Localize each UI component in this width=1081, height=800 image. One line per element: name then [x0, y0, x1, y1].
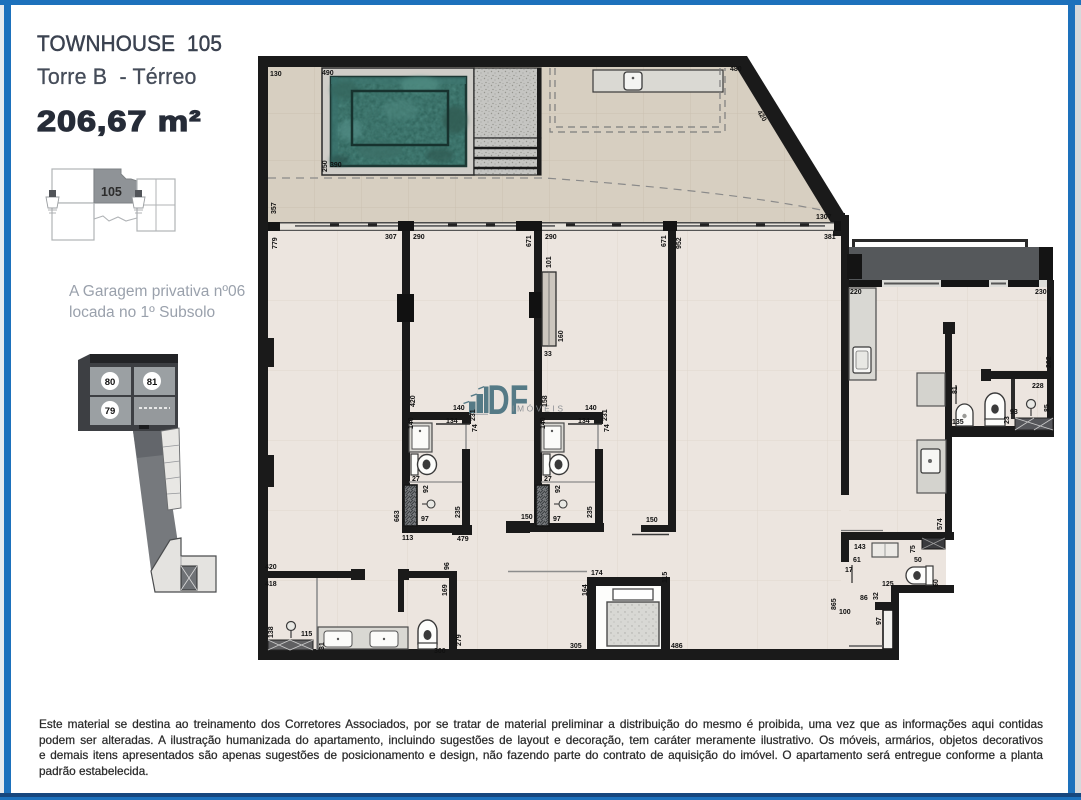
svg-text:574: 574: [937, 518, 944, 530]
svg-text:952: 952: [676, 237, 683, 249]
svg-text:231: 231: [602, 409, 609, 421]
svg-text:23: 23: [1004, 416, 1011, 424]
svg-text:130: 130: [270, 71, 282, 78]
svg-text:DF: DF: [488, 376, 529, 423]
svg-text:74: 74: [472, 424, 479, 432]
svg-text:479: 479: [457, 536, 469, 543]
svg-text:307: 307: [385, 234, 397, 241]
svg-text:92: 92: [555, 485, 562, 493]
svg-text:420: 420: [265, 564, 277, 571]
svg-text:1307: 1307: [816, 214, 832, 221]
svg-text:228: 228: [1032, 383, 1044, 390]
svg-text:115: 115: [662, 572, 669, 583]
svg-text:27: 27: [412, 476, 420, 483]
svg-text:390: 390: [330, 162, 342, 169]
svg-text:81: 81: [147, 377, 158, 388]
svg-text:169: 169: [442, 584, 449, 596]
svg-text:134: 134: [446, 418, 458, 425]
svg-text:235: 235: [587, 506, 594, 518]
svg-text:164: 164: [582, 584, 589, 596]
svg-text:115: 115: [301, 631, 312, 638]
svg-text:220: 220: [850, 289, 862, 296]
svg-text:158: 158: [542, 395, 549, 407]
svg-text:113: 113: [402, 535, 413, 542]
svg-text:79: 79: [105, 406, 116, 417]
svg-text:138: 138: [268, 626, 275, 638]
svg-text:290: 290: [545, 234, 557, 241]
svg-text:50: 50: [914, 557, 922, 564]
svg-text:140: 140: [540, 417, 547, 429]
svg-text:174: 174: [591, 570, 603, 577]
svg-text:93: 93: [1010, 409, 1018, 416]
svg-text:486: 486: [671, 643, 683, 650]
svg-text:75: 75: [910, 545, 917, 553]
svg-text:231: 231: [470, 409, 477, 421]
svg-text:60: 60: [933, 579, 940, 587]
svg-text:420: 420: [410, 395, 417, 407]
svg-text:61: 61: [853, 557, 861, 564]
svg-text:418: 418: [265, 581, 277, 588]
svg-text:97: 97: [553, 516, 561, 523]
svg-text:160: 160: [558, 330, 565, 342]
svg-text:135: 135: [952, 419, 964, 426]
svg-text:33: 33: [544, 351, 552, 358]
svg-text:150: 150: [646, 517, 658, 524]
svg-text:235: 235: [455, 506, 462, 518]
svg-text:779: 779: [272, 237, 279, 249]
svg-text:663: 663: [394, 510, 401, 522]
svg-text:300: 300: [434, 648, 446, 655]
svg-text:140: 140: [408, 417, 415, 429]
svg-text:305: 305: [570, 643, 582, 650]
svg-text:250: 250: [322, 160, 329, 172]
svg-text:671: 671: [661, 235, 668, 247]
svg-text:96: 96: [444, 562, 451, 570]
svg-text:381: 381: [824, 234, 836, 241]
svg-text:290: 290: [413, 234, 425, 241]
svg-text:100: 100: [839, 609, 851, 616]
svg-text:134: 134: [578, 418, 590, 425]
svg-text:97: 97: [421, 516, 429, 523]
svg-text:101: 101: [546, 256, 553, 268]
svg-text:17: 17: [845, 567, 853, 574]
svg-text:143: 143: [854, 544, 866, 551]
svg-text:357: 357: [271, 202, 278, 214]
svg-text:279: 279: [456, 634, 463, 646]
svg-text:97: 97: [876, 617, 883, 625]
svg-text:32: 32: [873, 592, 880, 600]
svg-text:150: 150: [521, 514, 533, 521]
svg-text:31: 31: [319, 642, 326, 650]
svg-text:125: 125: [882, 581, 894, 588]
svg-text:230: 230: [1035, 289, 1047, 296]
svg-text:480: 480: [730, 66, 742, 73]
svg-text:92: 92: [423, 485, 430, 493]
svg-text:27: 27: [544, 476, 552, 483]
svg-text:IMÓVEIS: IMÓVEIS: [512, 404, 566, 414]
svg-text:86: 86: [860, 595, 868, 602]
svg-text:490: 490: [322, 70, 334, 77]
svg-text:140: 140: [453, 405, 465, 412]
svg-text:140: 140: [585, 405, 597, 412]
svg-text:865: 865: [831, 598, 838, 610]
svg-text:105: 105: [101, 185, 122, 199]
svg-text:81: 81: [952, 386, 959, 394]
svg-text:202: 202: [1046, 356, 1053, 368]
svg-text:80: 80: [105, 377, 116, 388]
svg-text:74: 74: [604, 424, 611, 432]
svg-text:671: 671: [526, 235, 533, 247]
svg-text:85: 85: [1044, 404, 1051, 412]
